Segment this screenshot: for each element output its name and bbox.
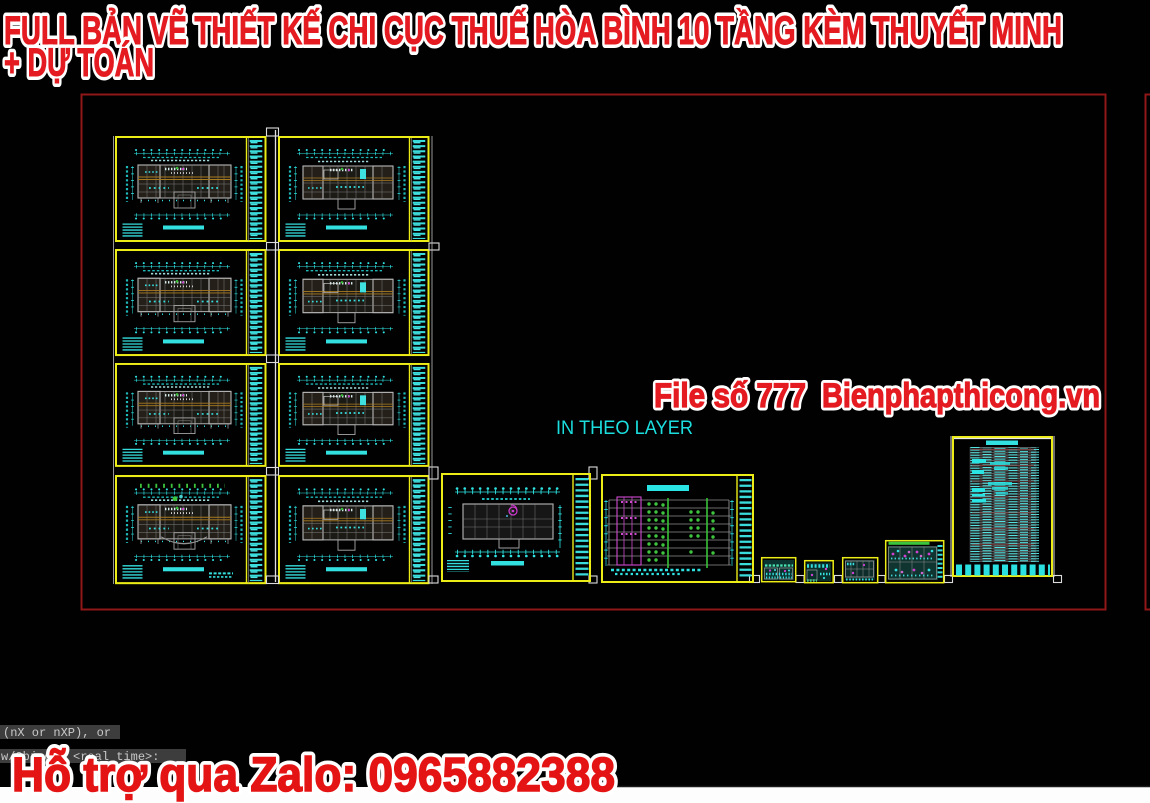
svg-text:(nX or nXP), or: (nX or nXP), or	[3, 726, 111, 740]
svg-text:Hỗ trợ qua Zalo: 0965882388: Hỗ trợ qua Zalo: 0965882388	[12, 748, 615, 802]
svg-text:IN THEO LAYER: IN THEO LAYER	[556, 418, 693, 439]
svg-text:Bienphapthicong.vn: Bienphapthicong.vn	[822, 377, 1100, 415]
svg-text:FULL BẢN VẼ THIẾT KẾ CHI CỤC: FULL BẢN VẼ THIẾT KẾ CHI CỤC THUẾ HÒA BÌ…	[4, 7, 1062, 53]
svg-text:+ DỰ TOÁN: + DỰ TOÁN	[4, 40, 154, 85]
svg-text:File số 777: File số 777	[654, 377, 806, 415]
